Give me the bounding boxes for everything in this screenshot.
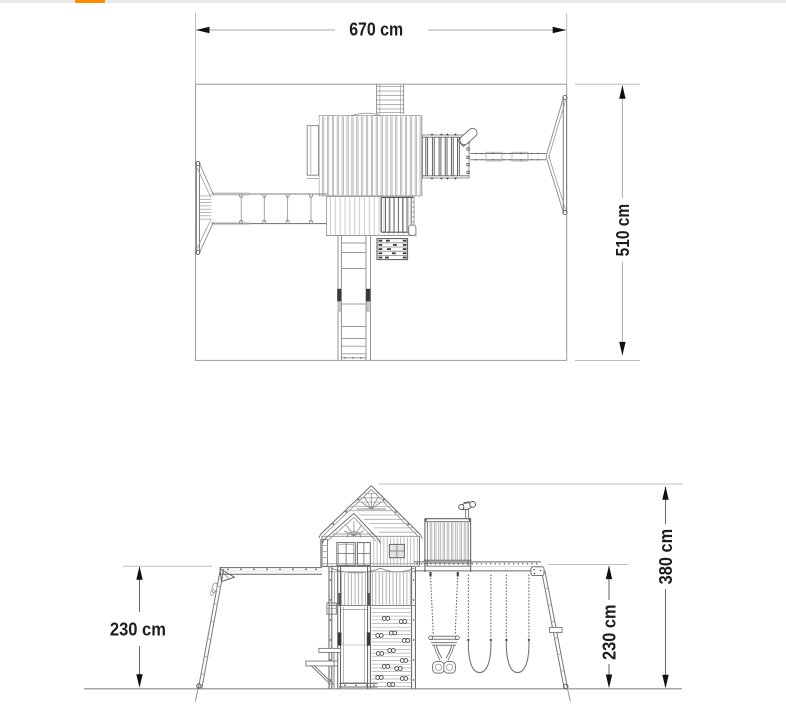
svg-text:670 cm: 670 cm: [349, 19, 403, 40]
svg-text:230 cm: 230 cm: [110, 618, 166, 639]
svg-text:230 cm: 230 cm: [599, 604, 620, 660]
svg-text:510 cm: 510 cm: [612, 204, 633, 257]
svg-text:380 cm: 380 cm: [655, 529, 676, 585]
